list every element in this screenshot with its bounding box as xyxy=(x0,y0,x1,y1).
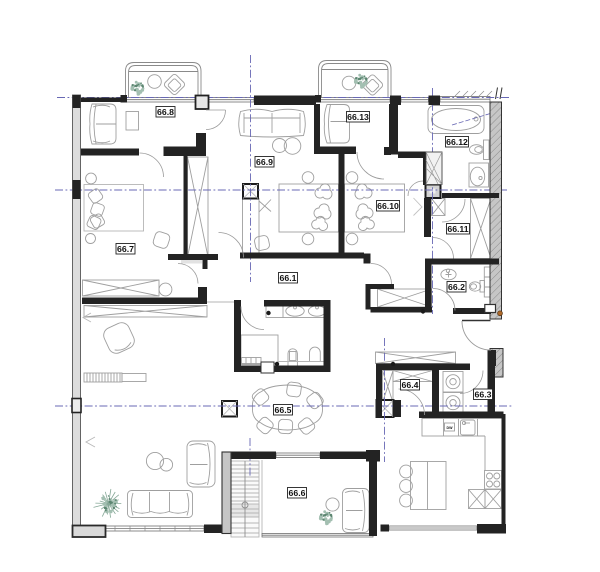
svg-text:66.4: 66.4 xyxy=(402,380,419,390)
svg-text:66.1: 66.1 xyxy=(280,273,297,283)
svg-text:66.6: 66.6 xyxy=(289,488,306,498)
svg-text:DW: DW xyxy=(447,426,454,430)
svg-text:66.2: 66.2 xyxy=(448,282,465,292)
svg-text:66.11: 66.11 xyxy=(447,224,468,234)
svg-text:66.9: 66.9 xyxy=(256,157,273,167)
svg-text:66.5: 66.5 xyxy=(275,405,292,415)
svg-text:66.8: 66.8 xyxy=(157,107,174,117)
svg-text:66.12: 66.12 xyxy=(446,137,468,147)
svg-text:66.10: 66.10 xyxy=(377,201,399,211)
svg-text:66.7: 66.7 xyxy=(117,244,134,254)
svg-text:66.13: 66.13 xyxy=(347,112,369,122)
svg-text:66.3: 66.3 xyxy=(475,390,492,400)
